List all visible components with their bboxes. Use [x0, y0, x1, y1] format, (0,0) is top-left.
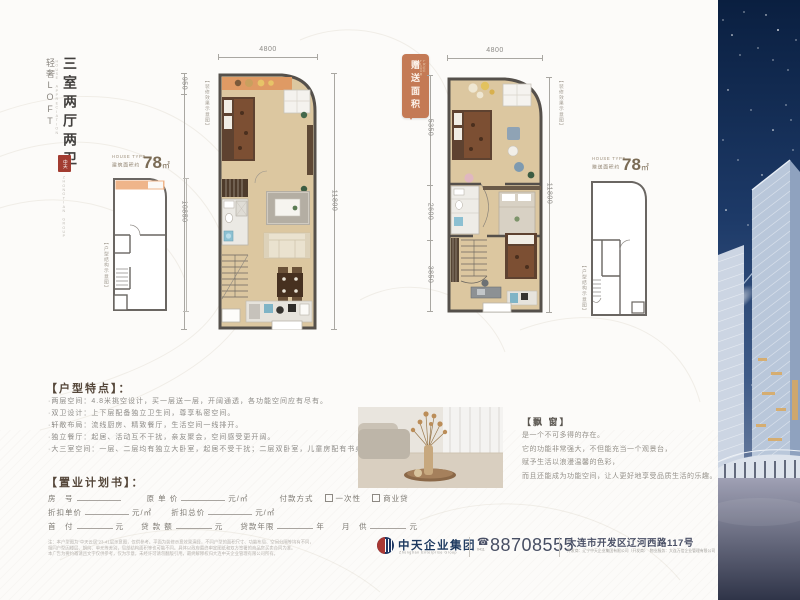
footer-divider: [469, 537, 470, 557]
field-blank: [208, 507, 252, 515]
mini-a-area-value: 78: [143, 153, 162, 172]
dim-tick: [317, 54, 318, 60]
poster-canvas: 轻奢LOFT HOUSE APPRECIATION 三室两厅两卫 中天 ZHON…: [0, 0, 800, 600]
checkbox: [325, 494, 333, 502]
features-title: 【户型特点】：: [46, 380, 132, 396]
field-label: 月 供: [342, 522, 368, 531]
gift-area-tag: 赠送面积 FREE FLOOR: [402, 54, 429, 118]
brand-seal-text: 中天: [61, 159, 68, 169]
address: 大连市开发区辽河西路117号: [567, 535, 694, 549]
phone-number: 88708555: [490, 535, 574, 556]
field-label: 贷款年限: [240, 522, 274, 531]
dim-tick: [331, 329, 337, 330]
phone-icon: ☎: [477, 538, 490, 548]
phone-area-code: 0411: [477, 548, 485, 552]
mini-a-area: 78㎡: [143, 153, 170, 173]
field-label: 折扣总价: [171, 508, 205, 517]
bay-window-copy: 是一个不可多得的存在。 它的功能非常强大，不但能充当一个观景台， 赋予生活以浪漫…: [522, 429, 717, 483]
field-blank: [370, 521, 406, 529]
bay-window-title: 【飘 窗】: [522, 415, 571, 428]
mini-b-area-unit: ㎡: [641, 163, 649, 172]
plan-b-dim-top-line: [447, 58, 543, 59]
field-unit: 元/㎡: [132, 508, 152, 517]
field-unit: 元: [116, 522, 125, 531]
mini-a-area-unit: ㎡: [162, 161, 170, 170]
dim-tick: [331, 73, 337, 74]
mini-a-type-label: HOUSE TYPE: [112, 155, 146, 159]
bay-window-line: 它的功能非常强大，不但能充当一个观景台，: [522, 443, 717, 457]
mini-b-side-note: 【户型结构示意图】: [580, 263, 587, 323]
plan-a-side-note: 【装修效果示意图】: [203, 78, 210, 138]
field-unit: 元: [215, 522, 224, 531]
mini-b-area-value: 78: [622, 155, 641, 174]
bay-window-line: 而且还能成为功能空间，让人更好地享受品质生活的乐趣。: [522, 470, 717, 484]
dim-tick: [427, 185, 433, 186]
plan-b-dim-top: 4800: [470, 47, 520, 54]
floor-plan-b: [447, 77, 543, 313]
field-blank: [85, 507, 129, 515]
field-label: 付款方式: [279, 494, 313, 503]
bay-window-line: 赋予生活以浪漫温馨的色彩，: [522, 456, 717, 470]
field-blank: [77, 493, 121, 501]
plan-book-row-1: 房 号 原 单 价元/㎡ 付款方式 一次性 商业贷: [48, 492, 418, 506]
dim-tick: [546, 77, 552, 78]
company-logo-icon: [377, 537, 394, 554]
dim-tick: [427, 75, 433, 76]
brand-seal-caption: ZHONGTIAN GROUP: [62, 176, 66, 248]
plan-a-dim-left-upper: 950: [181, 64, 188, 104]
dim-tick: [181, 329, 187, 330]
mini-b-type-label: HOUSE TYPE: [592, 157, 626, 161]
plan-a-dim-top: 4800: [243, 46, 293, 53]
checkbox: [372, 494, 380, 502]
logo-bars: [385, 539, 393, 552]
dim-tick: [183, 178, 189, 179]
company-name-en: Zhongtian Enterprise Group: [399, 551, 457, 554]
bay-window-line: 是一个不可多得的存在。: [522, 429, 717, 443]
disclaimer: 注：本户型图为“中天云居”23-41层示意图，仅供参考。平面为装修示意效果演绎，…: [48, 540, 314, 557]
dim-tick: [447, 55, 448, 61]
field-label: 首 付: [48, 522, 74, 531]
mini-b-area: 78㎡: [622, 155, 649, 175]
address-note: 开发商：辽宁中天企业集团有限公司（开发商） 物业服务：大连万信企业管理有限公司: [567, 548, 715, 554]
plan-b-dim-left-1: 5350: [427, 108, 434, 148]
dim-tick: [218, 54, 219, 60]
dim-tick: [546, 312, 552, 313]
interior-photo: [358, 407, 503, 488]
dim-tick: [183, 311, 189, 312]
dim-tick: [427, 240, 433, 241]
field-unit: 元: [409, 522, 418, 531]
logo-red-half: [377, 537, 385, 554]
plan-b-side-note: 【装修效果示意图】: [557, 78, 564, 138]
plan-b-dim-left-2: 2600: [427, 192, 434, 232]
field-blank: [176, 521, 212, 529]
field-label: 房 号: [48, 494, 74, 503]
field-label: 贷 款 额: [141, 522, 173, 531]
plan-book-row-3: 首 付元 贷 款 额元 贷款年限年 月 供元: [48, 520, 418, 534]
footer-divider: [559, 537, 560, 557]
plan-b-dim-left-3: 3850: [427, 255, 434, 295]
field-unit: 元/㎡: [255, 508, 275, 517]
phone-block: ☎ 0411: [477, 538, 490, 554]
field-label: 折扣单价: [48, 508, 82, 517]
field-unit: 元/㎡: [228, 494, 248, 503]
mini-a-side-note: 【户型结构示意图】: [102, 240, 109, 300]
series-label-en: HOUSE APPRECIATION: [55, 60, 59, 168]
field-blank: [277, 521, 313, 529]
mini-floor-plan-b: [590, 180, 648, 317]
dim-tick: [542, 55, 543, 61]
brand-seal: 中天: [58, 155, 71, 172]
mini-floor-plan-a: [112, 177, 168, 312]
plan-a-dim-top-line: [218, 57, 318, 58]
checkbox-label: 商业贷: [383, 494, 409, 503]
night-city-photo: [718, 0, 800, 600]
plan-b-dim-right: 11800: [546, 174, 553, 214]
gift-area-tag-text-en: FREE FLOOR: [419, 60, 426, 92]
plan-book-form: 房 号 原 单 价元/㎡ 付款方式 一次性 商业贷 折扣单价元/㎡ 折扣总价元/…: [48, 492, 418, 534]
floor-plan-a: [218, 73, 318, 330]
dim-tick: [427, 311, 433, 312]
field-blank: [181, 493, 225, 501]
field-unit: 年: [316, 522, 325, 531]
plan-a-dim-right: 11800: [331, 181, 338, 221]
plan-book-title: 【置业计划书】：: [46, 474, 145, 490]
checkbox-label: 一次性: [336, 494, 362, 503]
disclaimer-line: 本广告为要约邀请且文字仅供参考，仅为示意，未经许可请勿翻版引用，最终解释权归大连…: [48, 551, 314, 557]
field-blank: [77, 521, 113, 529]
plan-book-row-2: 折扣单价元/㎡ 折扣总价元/㎡: [48, 506, 418, 520]
mini-a-dim-line: [186, 178, 187, 312]
field-label: 原 单 价: [147, 494, 179, 503]
